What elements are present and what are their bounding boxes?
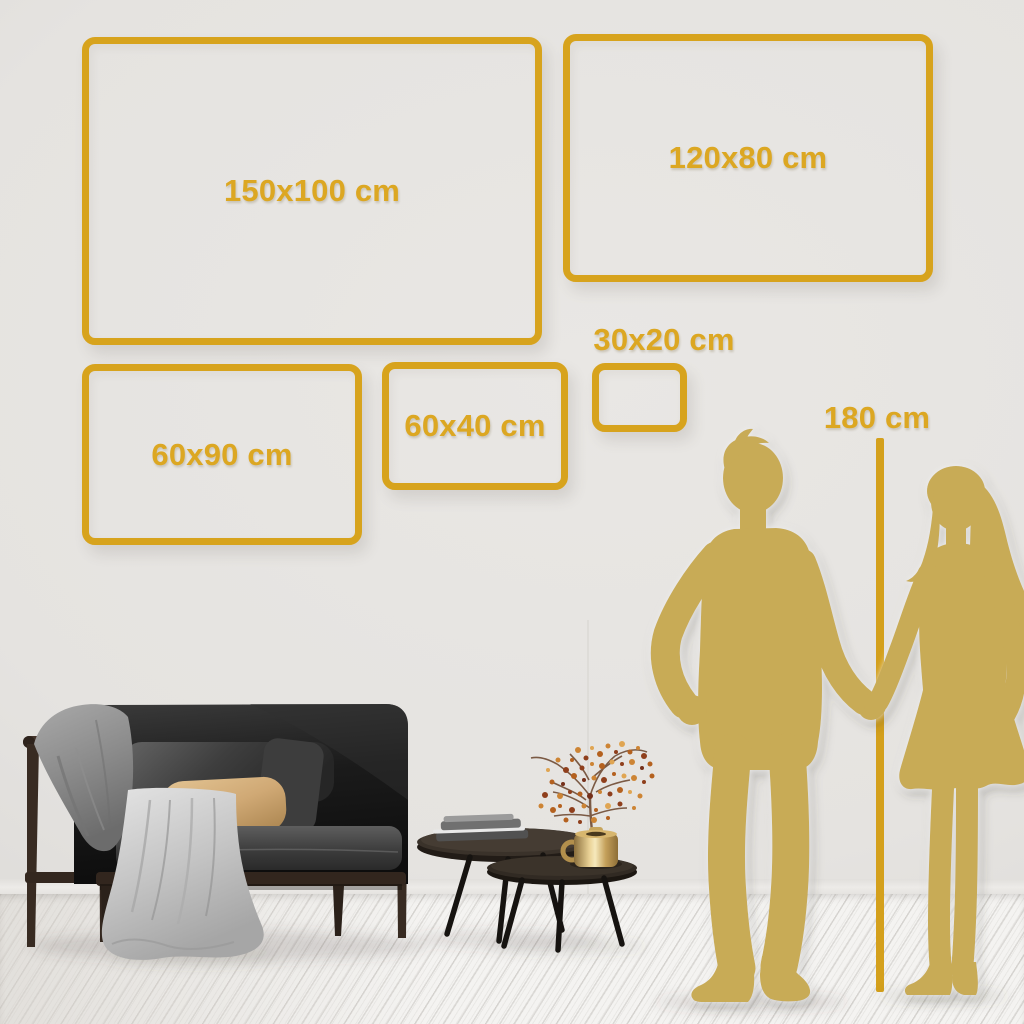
size-label-30x20: 30x20 cm: [574, 322, 754, 358]
size-label-120x80: 120x80 cm: [669, 140, 828, 176]
floor: [0, 894, 1024, 1024]
size-label-60x90: 60x90 cm: [151, 437, 292, 473]
size-frame-150x100: 150x100 cm: [82, 37, 542, 345]
baseboard: [0, 879, 1024, 894]
size-frame-120x80: 120x80 cm: [563, 34, 933, 282]
size-frame-30x20: [592, 363, 687, 432]
wall-seam: [587, 620, 589, 894]
height-label: 180 cm: [788, 400, 966, 436]
size-guide-scene: 150x100 cm 120x80 cm 60x90 cm 60x40 cm 3…: [0, 0, 1024, 1024]
size-frame-60x90: 60x90 cm: [82, 364, 362, 545]
size-frame-60x40: 60x40 cm: [382, 362, 568, 490]
size-label-150x100: 150x100 cm: [224, 173, 400, 209]
size-label-60x40: 60x40 cm: [404, 408, 545, 444]
